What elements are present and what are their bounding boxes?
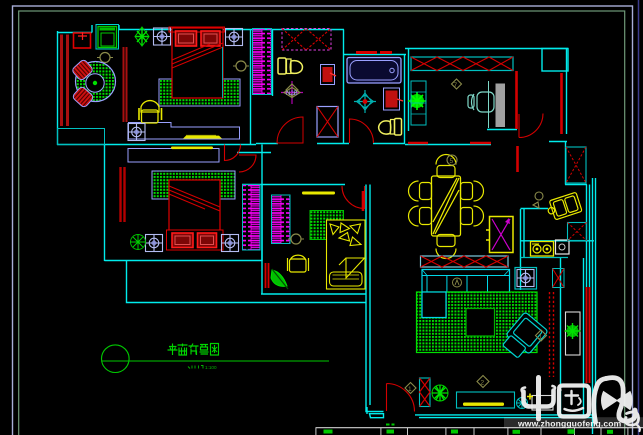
svg-text:1: 1 xyxy=(539,334,543,341)
svg-text:www.zhongguofeng.com: www.zhongguofeng.com xyxy=(517,418,622,428)
svg-text:N2B: N2B xyxy=(286,91,298,97)
svg-text:7: 7 xyxy=(454,82,458,89)
svg-text:1:100: 1:100 xyxy=(205,365,217,370)
svg-text:5: 5 xyxy=(450,158,454,165)
svg-text:2: 2 xyxy=(481,380,485,387)
svg-text:1: 1 xyxy=(408,386,412,393)
